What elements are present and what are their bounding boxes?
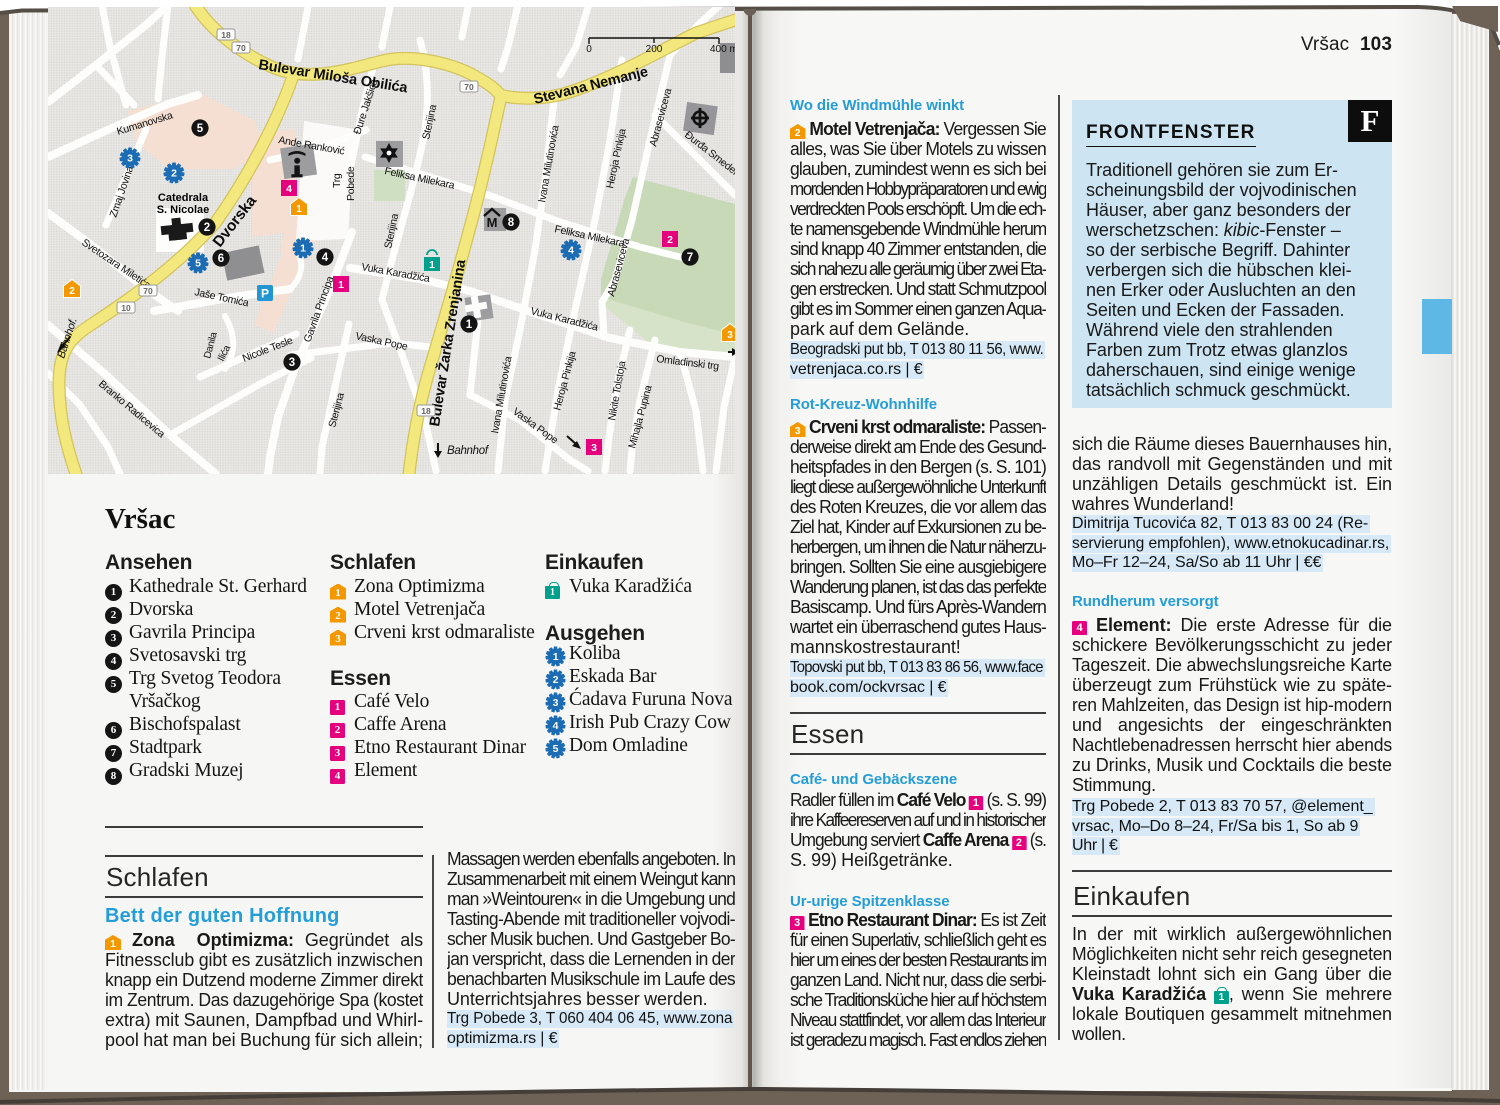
svg-text:10: 10	[121, 303, 131, 313]
svg-text:200: 200	[646, 44, 663, 55]
svg-text:2: 2	[204, 222, 210, 234]
svg-text:5: 5	[553, 743, 559, 755]
svg-text:400 m: 400 m	[710, 44, 735, 55]
svg-text:4: 4	[568, 245, 574, 257]
svg-text:2: 2	[553, 674, 559, 686]
svg-text:1: 1	[466, 319, 473, 331]
svg-text:3: 3	[289, 357, 295, 369]
svg-text:2: 2	[171, 168, 177, 180]
svg-text:6: 6	[218, 253, 224, 265]
svg-text:5: 5	[195, 258, 201, 270]
svg-text:4: 4	[322, 252, 329, 264]
svg-text:18: 18	[221, 30, 231, 40]
svg-text:1: 1	[300, 243, 306, 255]
svg-text:3: 3	[727, 330, 733, 341]
svg-text:8: 8	[508, 217, 515, 229]
svg-text:1: 1	[429, 259, 435, 271]
svg-text:3: 3	[127, 153, 133, 165]
svg-text:Catedrala: Catedrala	[158, 192, 209, 204]
svg-text:3: 3	[591, 442, 597, 454]
svg-text:Bahnhof: Bahnhof	[447, 445, 490, 457]
svg-text:2: 2	[69, 286, 75, 297]
svg-text:70: 70	[143, 286, 153, 296]
svg-text:4: 4	[553, 720, 559, 732]
svg-text:5: 5	[197, 123, 204, 135]
svg-text:3: 3	[553, 697, 559, 709]
svg-text:0: 0	[586, 44, 592, 55]
svg-text:1: 1	[553, 651, 559, 663]
svg-text:2: 2	[667, 234, 673, 246]
svg-text:70: 70	[464, 82, 474, 92]
svg-text:1: 1	[338, 279, 344, 291]
svg-text:Pobede: Pobede	[345, 166, 357, 201]
svg-text:18: 18	[421, 406, 431, 416]
svg-text:S. Nicolae: S. Nicolae	[157, 204, 210, 216]
svg-text:1: 1	[296, 204, 302, 215]
svg-text:7: 7	[687, 252, 693, 264]
svg-text:4: 4	[286, 183, 292, 195]
svg-text:M: M	[487, 215, 498, 230]
svg-text:P: P	[261, 287, 269, 301]
svg-text:Trg: Trg	[331, 173, 343, 188]
svg-text:70: 70	[236, 43, 246, 53]
